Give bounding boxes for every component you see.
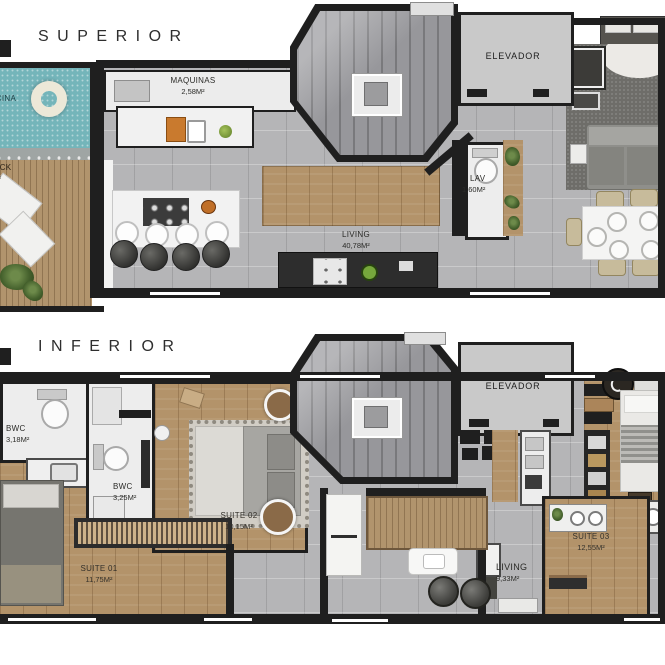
room-name-piscina: PISCINA [0, 94, 16, 105]
place-setting [639, 211, 659, 231]
dining-chair [630, 189, 658, 207]
bench [549, 575, 587, 589]
room-area-suite02: 10,15M² [206, 522, 272, 532]
suite03-room [542, 496, 650, 622]
round-sink [361, 264, 378, 281]
shelf [588, 454, 606, 467]
elevator-inferior: ELEVADOR [458, 342, 574, 436]
nightstand [179, 387, 205, 409]
deck-bottom-wall [0, 306, 104, 312]
corridor-counter [520, 430, 551, 506]
room-area-living-superior: 40,78M² [318, 241, 394, 251]
label-suite01: SUITE 01 11,75M² [66, 564, 132, 584]
room-name-suite02: SUITE 02 [206, 511, 272, 522]
label-bwc2: BWC 3,25M² [113, 482, 136, 502]
room-area-suite01: 11,75M² [66, 575, 132, 585]
kitchen-island [112, 190, 240, 248]
dining-chair [632, 258, 660, 276]
plant [505, 147, 520, 166]
wall-stub [119, 410, 151, 418]
bottom-counter [278, 252, 438, 288]
side-table [570, 144, 587, 164]
shelf-niche [572, 92, 600, 110]
window-slit [204, 618, 252, 621]
round-sink [570, 511, 585, 526]
deck: DECK 2M² [0, 160, 92, 306]
superior-topright-wall [564, 18, 665, 25]
label-living-superior: LIVING 40,78M² [318, 230, 394, 250]
room-area-maquinas: 2,58M² [150, 87, 236, 97]
counter-item [399, 261, 413, 271]
floor-plan-canvas: SUPERIOR PISCINA 4M² DECK 2M² MAQUINAS 2… [0, 0, 665, 665]
appliance-dark [525, 475, 542, 489]
plant [552, 508, 563, 521]
terrace-deck [366, 496, 488, 550]
room-name-living-inferior: LIVING [496, 562, 527, 574]
terrace-top-wall [366, 488, 486, 496]
cooktop-small [313, 258, 347, 285]
label-bwc1: BWC 3,18M² [6, 424, 29, 444]
window-slit [470, 292, 550, 295]
staircase-superior [290, 4, 458, 162]
bowl-greens [219, 125, 232, 138]
sofa-back [589, 127, 662, 145]
window-slit [120, 375, 210, 378]
table-detail [423, 554, 445, 569]
edge-artifact-inferior [0, 348, 11, 365]
kitchen-counter [116, 106, 254, 148]
room-name-suite01: SUITE 01 [66, 564, 132, 575]
kitchen-sink [187, 120, 206, 143]
place-setting [607, 212, 627, 232]
toilet-bowl [103, 446, 129, 471]
stair-void [364, 406, 388, 428]
terrace-table [408, 548, 458, 575]
sofa-seat [589, 147, 624, 185]
room-area-living-inferior: 9,33M² [496, 574, 527, 584]
bar-stool [140, 243, 168, 271]
planter [326, 494, 362, 576]
label-elevador-inferior: ELEVADOR [461, 345, 565, 427]
cooktop [143, 198, 189, 226]
label-living-inferior: LIVING 9,33M² [496, 562, 527, 584]
room-area-deck: 2M² [0, 174, 11, 184]
room-area-bwc1: 3,18M² [6, 435, 29, 445]
toilet-bowl [41, 399, 69, 429]
room-name-maquinas: MAQUINAS [150, 76, 236, 87]
round-rug [602, 44, 665, 78]
washing-machine [114, 80, 150, 102]
living-bench [498, 598, 538, 613]
shower-tray [92, 387, 122, 425]
pool-float-icon [31, 81, 67, 117]
blanket [1, 565, 61, 603]
room-name-bwc2: BWC [113, 482, 136, 493]
superior-right-wall [658, 18, 665, 298]
stair-top-box [404, 332, 446, 345]
suite03-vanity [549, 504, 607, 532]
shower-niche [570, 48, 604, 88]
pool: PISCINA 4M² [0, 68, 92, 148]
bed-suite01 [0, 480, 64, 606]
window-slit [8, 618, 96, 621]
staircase-inferior [290, 334, 458, 484]
bar-stool [172, 243, 200, 271]
label-suite03: SUITE 03 12,55M² [560, 532, 622, 552]
pot [201, 200, 216, 214]
window-slit [150, 292, 220, 295]
label-suite02: SUITE 02 10,15M² [206, 511, 272, 531]
inferior-right-wall [658, 378, 665, 618]
bench [141, 440, 150, 488]
label-deck: DECK 2M² [0, 163, 11, 183]
room-name-suite03: SUITE 03 [560, 532, 622, 543]
floor-title-superior: SUPERIOR [38, 28, 190, 46]
appliance [588, 472, 606, 485]
plant [508, 216, 520, 230]
bwc1-room: BWC 3,18M² [0, 381, 92, 463]
stool [154, 425, 170, 441]
floor-title-inferior: INFERIOR [38, 338, 182, 356]
room-area-bwc2: 3,25M² [113, 493, 136, 503]
room-name-bwc1: BWC [6, 424, 29, 435]
window-slit [624, 618, 660, 621]
window-slit [332, 619, 388, 622]
room-area-lav: 1,60M² [462, 185, 485, 195]
dining-chair [598, 258, 626, 276]
terrace-chair [460, 578, 491, 609]
toilet-tank [472, 148, 498, 158]
sofa [586, 124, 665, 190]
label-piscina: PISCINA 4M² [0, 94, 16, 114]
pool-coping [0, 148, 92, 160]
room-area-suite03: 12,55M² [560, 543, 622, 553]
stair-void [364, 82, 388, 106]
round-sink [588, 511, 603, 526]
superior-top-wall [96, 60, 298, 68]
edge-artifact-superior [0, 40, 11, 57]
sofa-seat [627, 147, 662, 185]
label-elevador-superior: ELEVADOR [461, 15, 565, 97]
bar-stool [110, 240, 138, 268]
room-area-piscina: 4M² [0, 105, 16, 115]
dining-chair [566, 218, 582, 246]
appliance [588, 436, 606, 449]
appliance [525, 437, 544, 451]
planter-detail [331, 535, 357, 538]
label-lav: LAV 1,60M² [462, 174, 485, 194]
cabinet [584, 412, 612, 424]
room-name-lav: LAV [462, 174, 485, 185]
pillow [3, 484, 59, 508]
elevator-superior: ELEVADOR [458, 12, 574, 106]
superior-left-wall [90, 62, 104, 298]
bwc2-room: BWC 3,25M² [86, 381, 160, 531]
window-slit [300, 375, 380, 378]
shaft-block [462, 448, 478, 460]
label-maquinas: MAQUINAS 2,58M² [150, 76, 236, 96]
shaft-block [460, 430, 480, 444]
bar-stool [202, 240, 230, 268]
place-setting [609, 240, 629, 260]
stair-top-box [410, 2, 454, 16]
hall-wall [226, 544, 234, 616]
cabinet-wood [584, 398, 614, 412]
dining-table [582, 206, 665, 260]
wood-floor-band [262, 166, 440, 226]
mattress [195, 426, 245, 516]
terrace-chair [428, 576, 459, 607]
room-name-living-superior: LIVING [318, 230, 394, 241]
cutting-board [166, 117, 186, 142]
corridor-wood [492, 430, 518, 502]
appliance [525, 455, 544, 469]
place-setting [587, 227, 607, 247]
room-name-deck: DECK [0, 163, 11, 174]
